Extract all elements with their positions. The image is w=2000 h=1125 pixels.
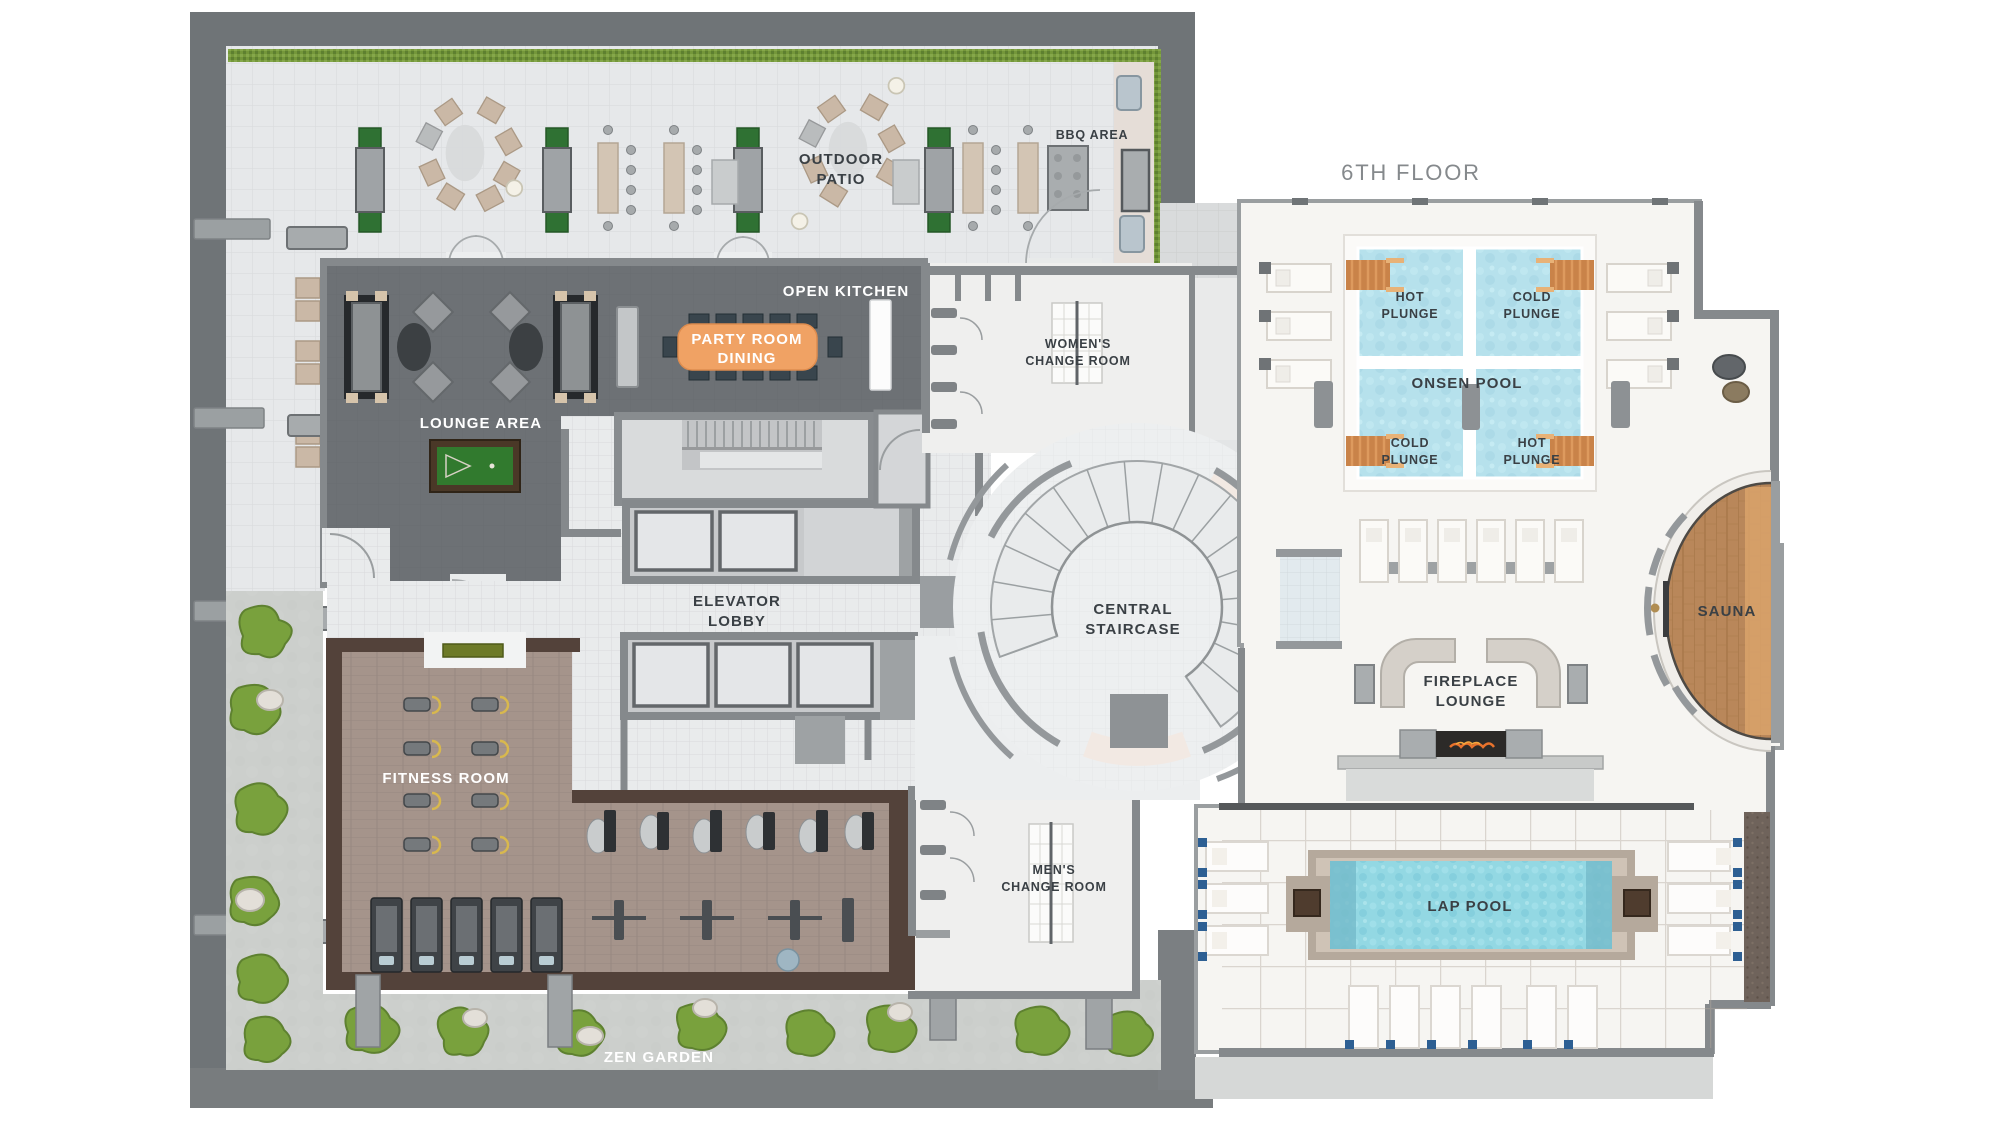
svg-text:FITNESS ROOM: FITNESS ROOM [382,770,509,787]
svg-text:SAUNA: SAUNA [1698,603,1757,620]
svg-text:ONSEN POOL: ONSEN POOL [1411,375,1522,392]
svg-text:LAP POOL: LAP POOL [1427,898,1512,915]
svg-text:ZEN GARDEN: ZEN GARDEN [604,1049,714,1066]
svg-text:6TH FLOOR: 6TH FLOOR [1341,160,1481,185]
svg-text:LOUNGE AREA: LOUNGE AREA [420,415,542,432]
svg-text:OPEN KITCHEN: OPEN KITCHEN [783,283,910,300]
svg-text:BBQ AREA: BBQ AREA [1056,128,1129,142]
